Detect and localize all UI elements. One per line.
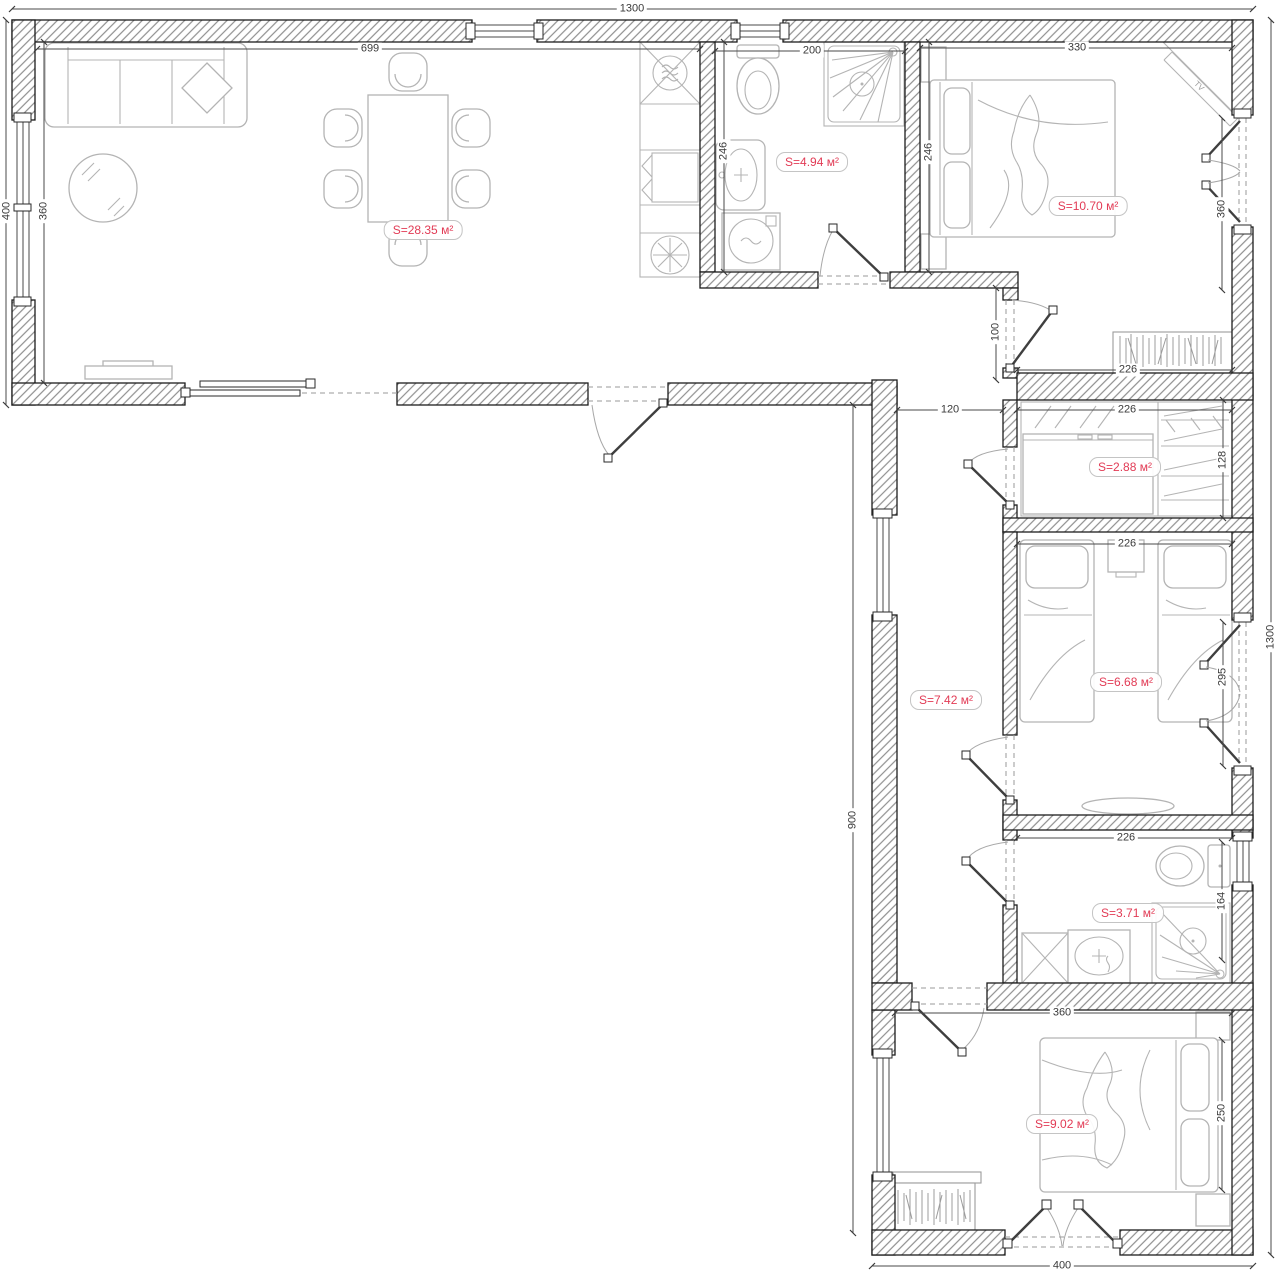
nightstand <box>1196 1194 1230 1226</box>
dim-overall-right: 1300 <box>1265 622 1278 652</box>
dim-kids-width: 226 <box>1115 538 1139 551</box>
dim-hall-length: 900 <box>847 808 860 832</box>
kids-bed-left <box>1020 540 1094 722</box>
hallway-window <box>873 509 892 621</box>
dim-bedroom-top-depth: 246 <box>923 140 936 164</box>
area-label-closet: S=2.88 м² <box>1089 457 1161 477</box>
bathroom-top-door <box>818 224 890 284</box>
shower <box>824 42 904 126</box>
washing-machine <box>722 213 780 270</box>
fridge <box>642 153 698 202</box>
dim-bath-top-depth: 246 <box>718 139 731 163</box>
dim-bedroom-top-door: 100 <box>990 320 1003 344</box>
cooktop <box>651 236 689 274</box>
furniture-kitchen <box>640 42 700 277</box>
area-label-bathroom-bottom: S=3.71 м² <box>1092 903 1164 923</box>
area-label-hallway: S=7.42 м² <box>910 690 982 710</box>
dim-bedroom-top-width: 330 <box>1065 42 1089 55</box>
dim-closet-width: 226 <box>1115 404 1139 417</box>
round-table <box>69 154 137 222</box>
area-label-living-room: S=28.35 м² <box>384 220 463 240</box>
bedroom-bottom-door <box>911 988 987 1056</box>
dim-bedroom-top-window: 360 <box>1216 197 1229 221</box>
top-window-right <box>731 23 789 39</box>
sliding-door <box>181 379 397 397</box>
area-label-bathroom-top: S=4.94 м² <box>776 152 848 172</box>
doors <box>181 224 1122 1248</box>
floor-plan-page: { "colors": { "area_label": "#e23b55", "… <box>0 0 1280 1277</box>
dim-living-width: 699 <box>358 43 382 56</box>
kids-bed-right <box>1158 540 1232 722</box>
sofa <box>45 43 247 127</box>
area-label-bedroom-top: S=10.70 м² <box>1049 196 1128 216</box>
floor-plan-canvas <box>0 0 1280 1277</box>
dining-table <box>368 95 448 222</box>
dim-hall-width: 120 <box>938 404 962 417</box>
wardrobe <box>893 1172 981 1230</box>
dim-closet-depth: 128 <box>1217 448 1230 472</box>
dim-bedroom-top-wardrobe: 226 <box>1116 364 1140 377</box>
furniture-living-room <box>45 43 490 379</box>
shelf-hatch <box>1035 406 1114 428</box>
dim-overall-left: 400 <box>1 199 14 223</box>
dim-living-depth: 360 <box>38 199 51 223</box>
dim-bath-bottom-width: 226 <box>1114 832 1138 845</box>
dim-kids-window: 295 <box>1217 665 1230 689</box>
toilet <box>1156 845 1230 887</box>
dim-overall-bottom: 400 <box>1050 1260 1074 1273</box>
entrance-door <box>588 387 668 462</box>
sink <box>1068 930 1130 983</box>
kitchen-sink-unit <box>640 42 700 104</box>
washing-machine <box>1022 933 1068 983</box>
closet-door <box>964 447 1014 509</box>
dim-bedroom-bottom-depth: 250 <box>1216 1101 1229 1125</box>
dim-bedroom-bottom-width: 360 <box>1050 1007 1074 1020</box>
bedroom-bottom-window <box>873 1049 892 1181</box>
bathroom-bottom-door <box>962 840 1014 909</box>
dim-bath-bottom-window: 164 <box>1216 889 1229 913</box>
top-window-left <box>466 23 543 39</box>
bedroom-top-door <box>1006 300 1057 372</box>
dim-overall-top: 1300 <box>617 3 647 16</box>
area-label-kids-room: S=6.68 м² <box>1090 672 1162 692</box>
nightstand <box>1196 1012 1230 1040</box>
area-label-bedroom-bottom: S=9.02 м² <box>1026 1114 1098 1134</box>
toilet <box>737 45 779 114</box>
french-doors-bedroom-bottom <box>1003 1200 1122 1248</box>
kids-room-door <box>962 735 1014 804</box>
bathroom-bottom-window <box>1233 832 1252 891</box>
living-room-window <box>14 113 31 306</box>
kids-table <box>1082 798 1174 816</box>
tv-console <box>85 361 172 379</box>
dim-bath-top-width: 200 <box>800 45 824 58</box>
nightstand <box>921 234 946 269</box>
nightstand <box>921 47 946 82</box>
